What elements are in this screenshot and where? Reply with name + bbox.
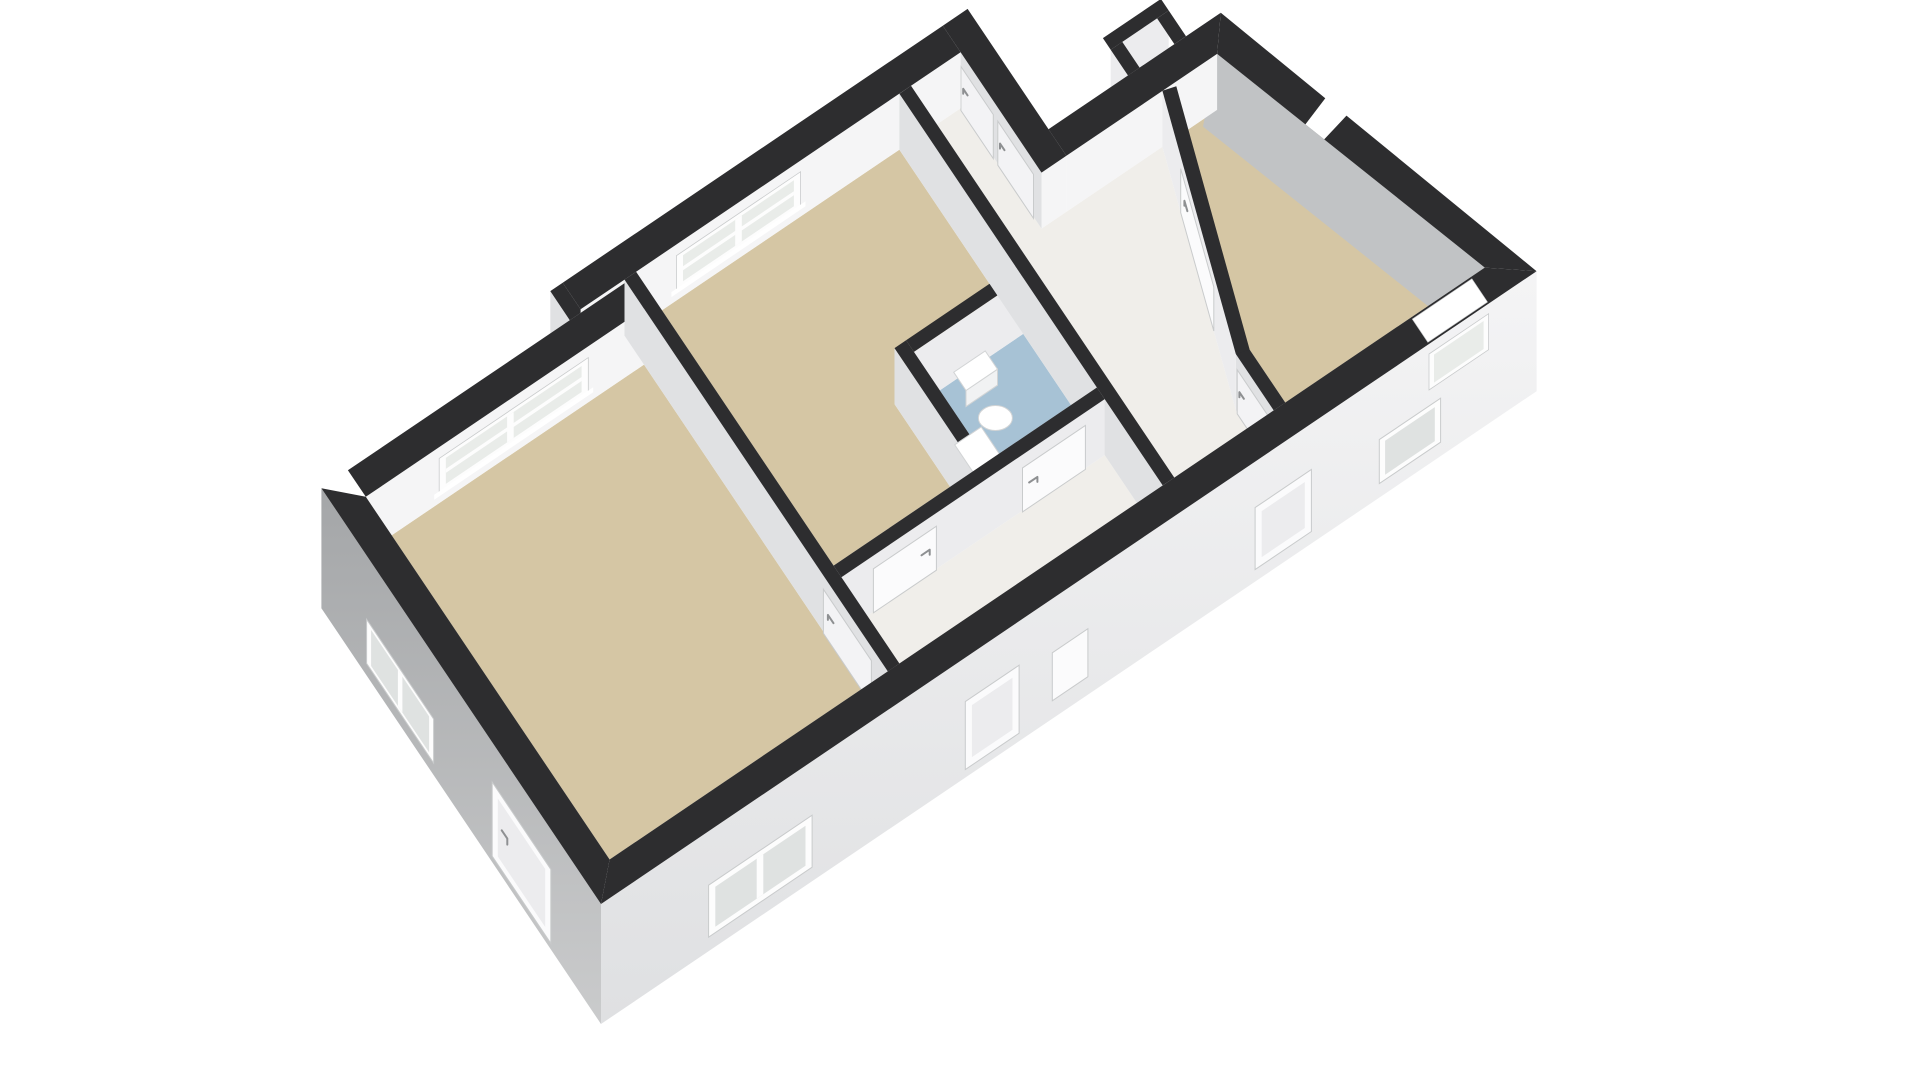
floorplan-3d-view xyxy=(0,0,1920,1080)
facade-window-mullion xyxy=(757,854,764,899)
facade-window-mullion xyxy=(398,670,403,713)
floorplan-canvas xyxy=(0,0,1920,1080)
toilet xyxy=(978,406,1012,431)
